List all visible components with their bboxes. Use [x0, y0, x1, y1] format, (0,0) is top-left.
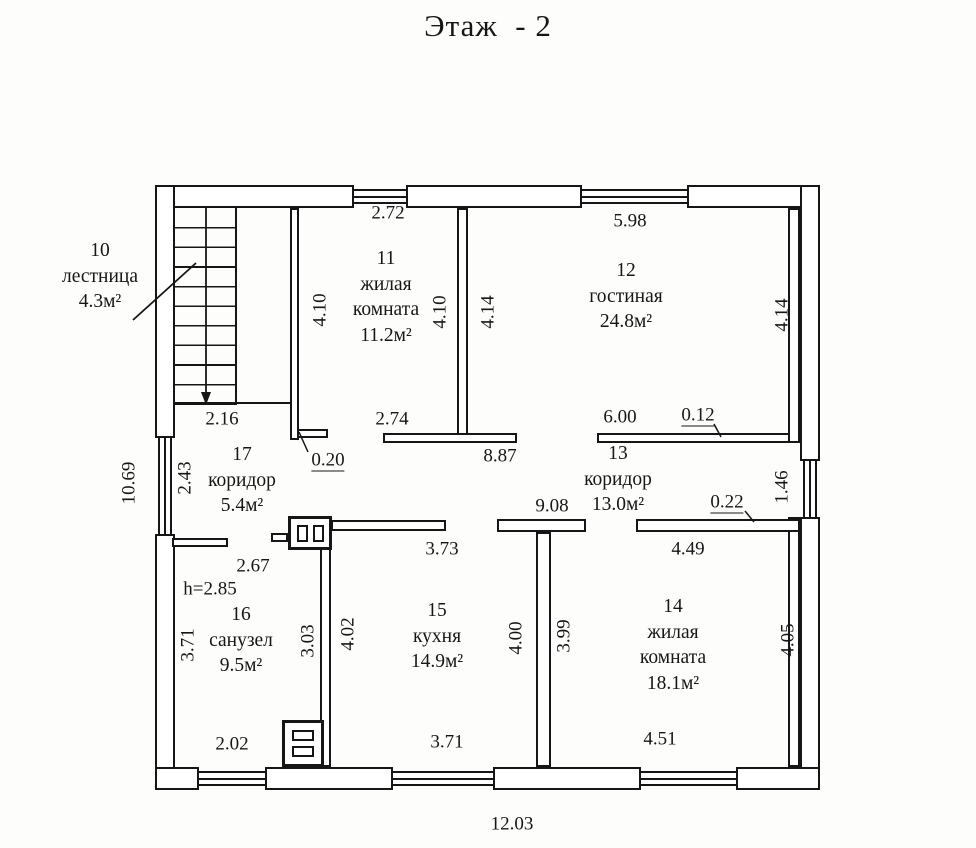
- stair-treads: [175, 227, 237, 405]
- dimension-label: 3.71: [179, 628, 198, 661]
- floor-plan: Этаж - 2: [0, 0, 976, 848]
- room-label-13: 13 коридор 13.0м²: [584, 441, 652, 518]
- room-label-12: 12 гостиная 24.8м²: [589, 258, 662, 335]
- window-symbol: [803, 461, 817, 517]
- outer-wall-bottom: [493, 767, 641, 790]
- room-label-10: 10 лестница 4.3м²: [62, 238, 138, 315]
- outer-wall-bottom: [265, 767, 393, 790]
- dimension-label: 4.49: [671, 540, 704, 559]
- dimension-label: 4.14: [773, 298, 792, 331]
- vent-shaft: [288, 516, 332, 550]
- dimension-label: 0.12: [681, 406, 714, 427]
- dimension-label: 9.08: [535, 497, 568, 516]
- room-label-11: 11 жилая комната 11.2м²: [353, 246, 419, 349]
- room-label-17: 17 коридор 5.4м²: [208, 442, 276, 519]
- outer-wall-left: [155, 534, 175, 790]
- dimension-label: 12.03: [491, 815, 534, 834]
- dimension-label: 2.02: [215, 735, 248, 754]
- dimension-label: 1.46: [773, 470, 792, 503]
- dimension-label: 6.00: [603, 408, 636, 427]
- kitchen-room14-wall: [536, 532, 551, 767]
- stair-bottom-line: [175, 402, 290, 404]
- dimension-label: 4.10: [311, 293, 330, 326]
- dimension-label: 5.98: [613, 212, 646, 231]
- kitchen-top-wall: [331, 520, 446, 531]
- leader-lines: [0, 0, 976, 848]
- vent-shaft: [282, 720, 324, 767]
- window-symbol: [158, 438, 172, 534]
- dimension-label: 10.69: [120, 462, 139, 505]
- dimension-label: 2.67: [236, 557, 269, 576]
- outer-wall-right: [800, 517, 820, 790]
- dimension-label: 2.72: [371, 204, 404, 223]
- outer-wall-bottom: [155, 767, 199, 790]
- plan-title: Этаж - 2: [0, 8, 976, 44]
- window-symbol: [641, 771, 736, 786]
- dimension-label: 3.73: [425, 540, 458, 559]
- stair-right-wall: [290, 208, 299, 440]
- dimension-label: 2.16: [205, 410, 238, 429]
- outer-wall-right: [800, 185, 820, 461]
- dimension-label: 4.51: [643, 730, 676, 749]
- window-symbol: [393, 771, 493, 786]
- dimension-label: 4.02: [339, 617, 358, 650]
- corridor17-bottom-wall: [172, 538, 228, 547]
- outer-wall-left: [155, 185, 175, 438]
- room11-right-wall: [457, 208, 468, 437]
- dimension-label: h=2.85: [183, 580, 236, 599]
- corridor13-top-wall: [383, 433, 517, 443]
- corridor13-bottom-wall: [497, 519, 586, 532]
- outer-wall-bottom: [736, 767, 820, 790]
- dimension-label: 4.14: [479, 295, 498, 328]
- dimension-label: 3.71: [430, 733, 463, 752]
- dimension-label: 2.43: [176, 461, 195, 494]
- window-symbol: [199, 771, 265, 786]
- room-label-16: 16 санузел 9.5м²: [209, 602, 273, 679]
- room-label-15: 15 кухня 14.9м²: [411, 598, 463, 675]
- dimension-label: 4.05: [779, 623, 798, 656]
- outer-wall-top: [155, 185, 354, 208]
- room-label-14: 14 жилая комната 18.1м²: [640, 594, 706, 697]
- dimension-label: 3.03: [299, 624, 318, 657]
- dimension-label: 4.10: [431, 295, 450, 328]
- stair-wall-stub: [297, 429, 328, 438]
- corridor13-bottom-wall: [636, 519, 800, 532]
- window-symbol: [582, 189, 687, 204]
- dimension-label: 3.99: [555, 619, 574, 652]
- dimension-label: 8.87: [483, 447, 516, 466]
- dimension-label: 0.22: [710, 493, 743, 514]
- stair-edge-line: [235, 208, 237, 404]
- dimension-label: 2.74: [375, 410, 408, 429]
- dimension-label: 0.20: [311, 451, 344, 472]
- dimension-label: 4.00: [507, 621, 526, 654]
- vent-shaft-left-stub: [271, 533, 288, 542]
- outer-wall-top: [406, 185, 582, 208]
